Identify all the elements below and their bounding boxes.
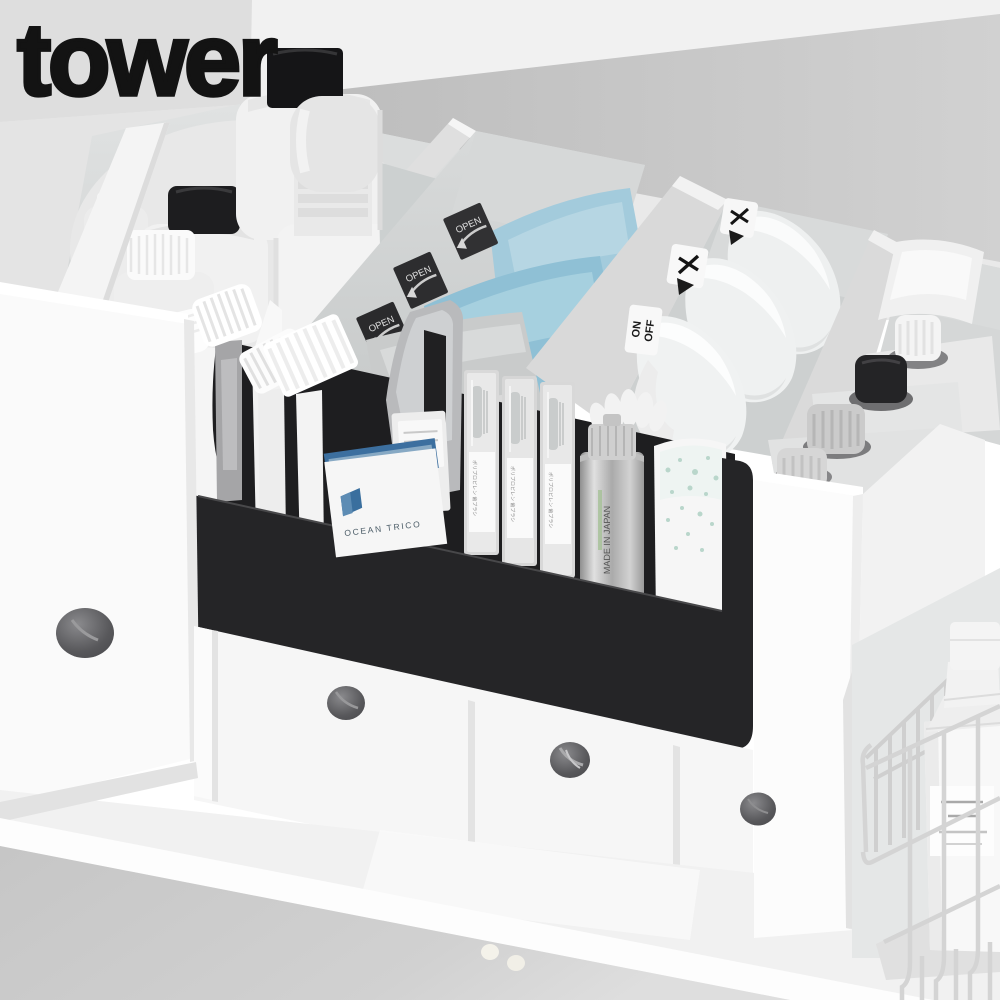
svg-text:ポリプロピレン 歯ブラシ: ポリプロピレン 歯ブラシ	[547, 472, 554, 528]
svg-text:tower: tower	[17, 2, 277, 117]
svg-text:ON: ON	[630, 320, 644, 338]
svg-text:ポリプロピレン 歯ブラシ: ポリプロピレン 歯ブラシ	[509, 466, 516, 522]
svg-text:MADE IN JAPAN: MADE IN JAPAN	[602, 506, 612, 574]
svg-text:ポリプロピレン 歯ブラシ: ポリプロピレン 歯ブラシ	[471, 460, 478, 516]
